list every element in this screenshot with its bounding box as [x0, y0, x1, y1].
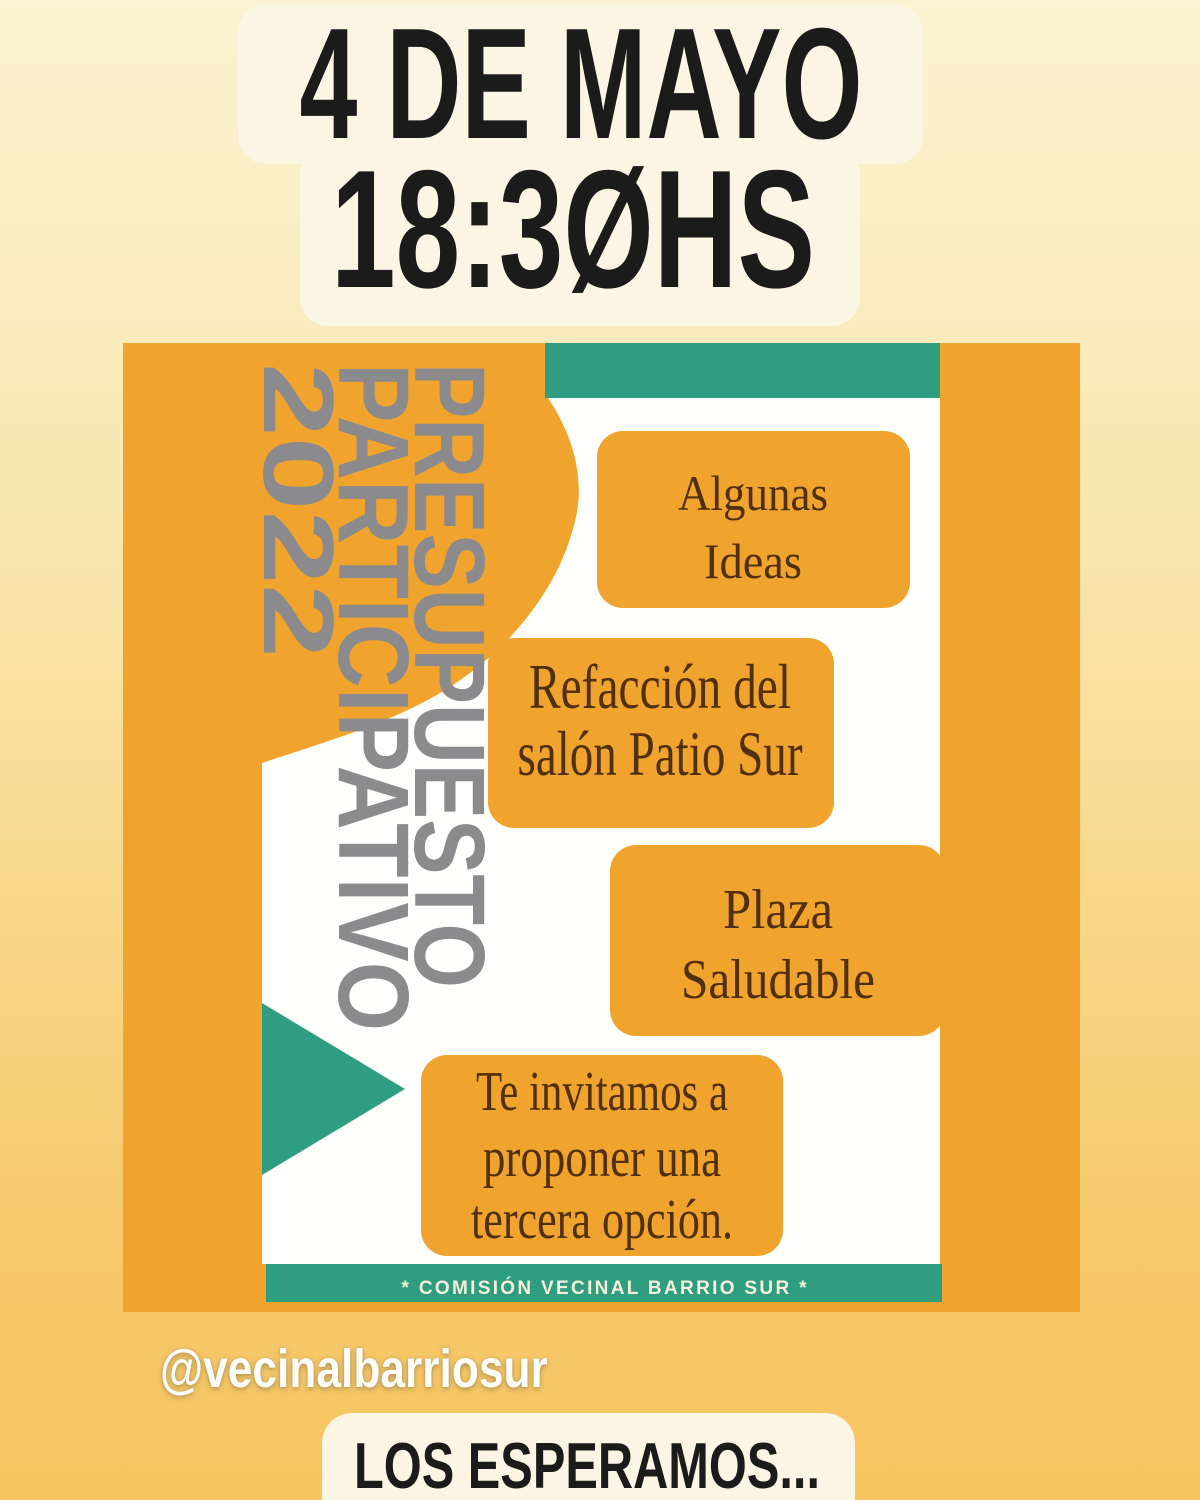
idea-box-invitacion-line-1: Te invitamos a — [476, 1061, 728, 1123]
idea-box-refaccion-line-2: salón Patio Sur — [518, 718, 803, 789]
idea-box-invitacion-line-3: tercera opción. — [471, 1189, 733, 1251]
idea-box-plaza-line-1: Plaza — [723, 879, 833, 941]
idea-box-algunas-line-1: Algunas — [678, 465, 828, 521]
footer-text-layer: LOS ESPERAMOS... — [0, 1360, 1200, 1500]
idea-box-refaccion-line-1: Refacción del — [529, 651, 791, 722]
flyer-poster: PRESUPUESTO PARTICIPATIVO 2022 Algunas I… — [123, 343, 1080, 1312]
flyer-top-bar — [545, 343, 940, 398]
footer-text: LOS ESPERAMOS... — [354, 1429, 820, 1500]
footer-bar-label: * COMISIÓN VECINAL BARRIO SUR * — [402, 1277, 808, 1299]
vertical-title-line-3: 2022 — [242, 363, 354, 658]
idea-box-invitacion-line-2: proponer una — [483, 1127, 721, 1189]
idea-box-algunas-line-2: Ideas — [704, 533, 802, 589]
story-canvas: 4 DE MAYO 18:3ØHS PRESUPUESTO PARTICIPAT… — [0, 0, 1200, 1500]
title-time: 18:3ØHS — [331, 135, 815, 323]
idea-box-plaza-line-2: Saludable — [681, 949, 875, 1011]
title-text-layer: 4 DE MAYO 18:3ØHS — [0, 0, 1200, 340]
